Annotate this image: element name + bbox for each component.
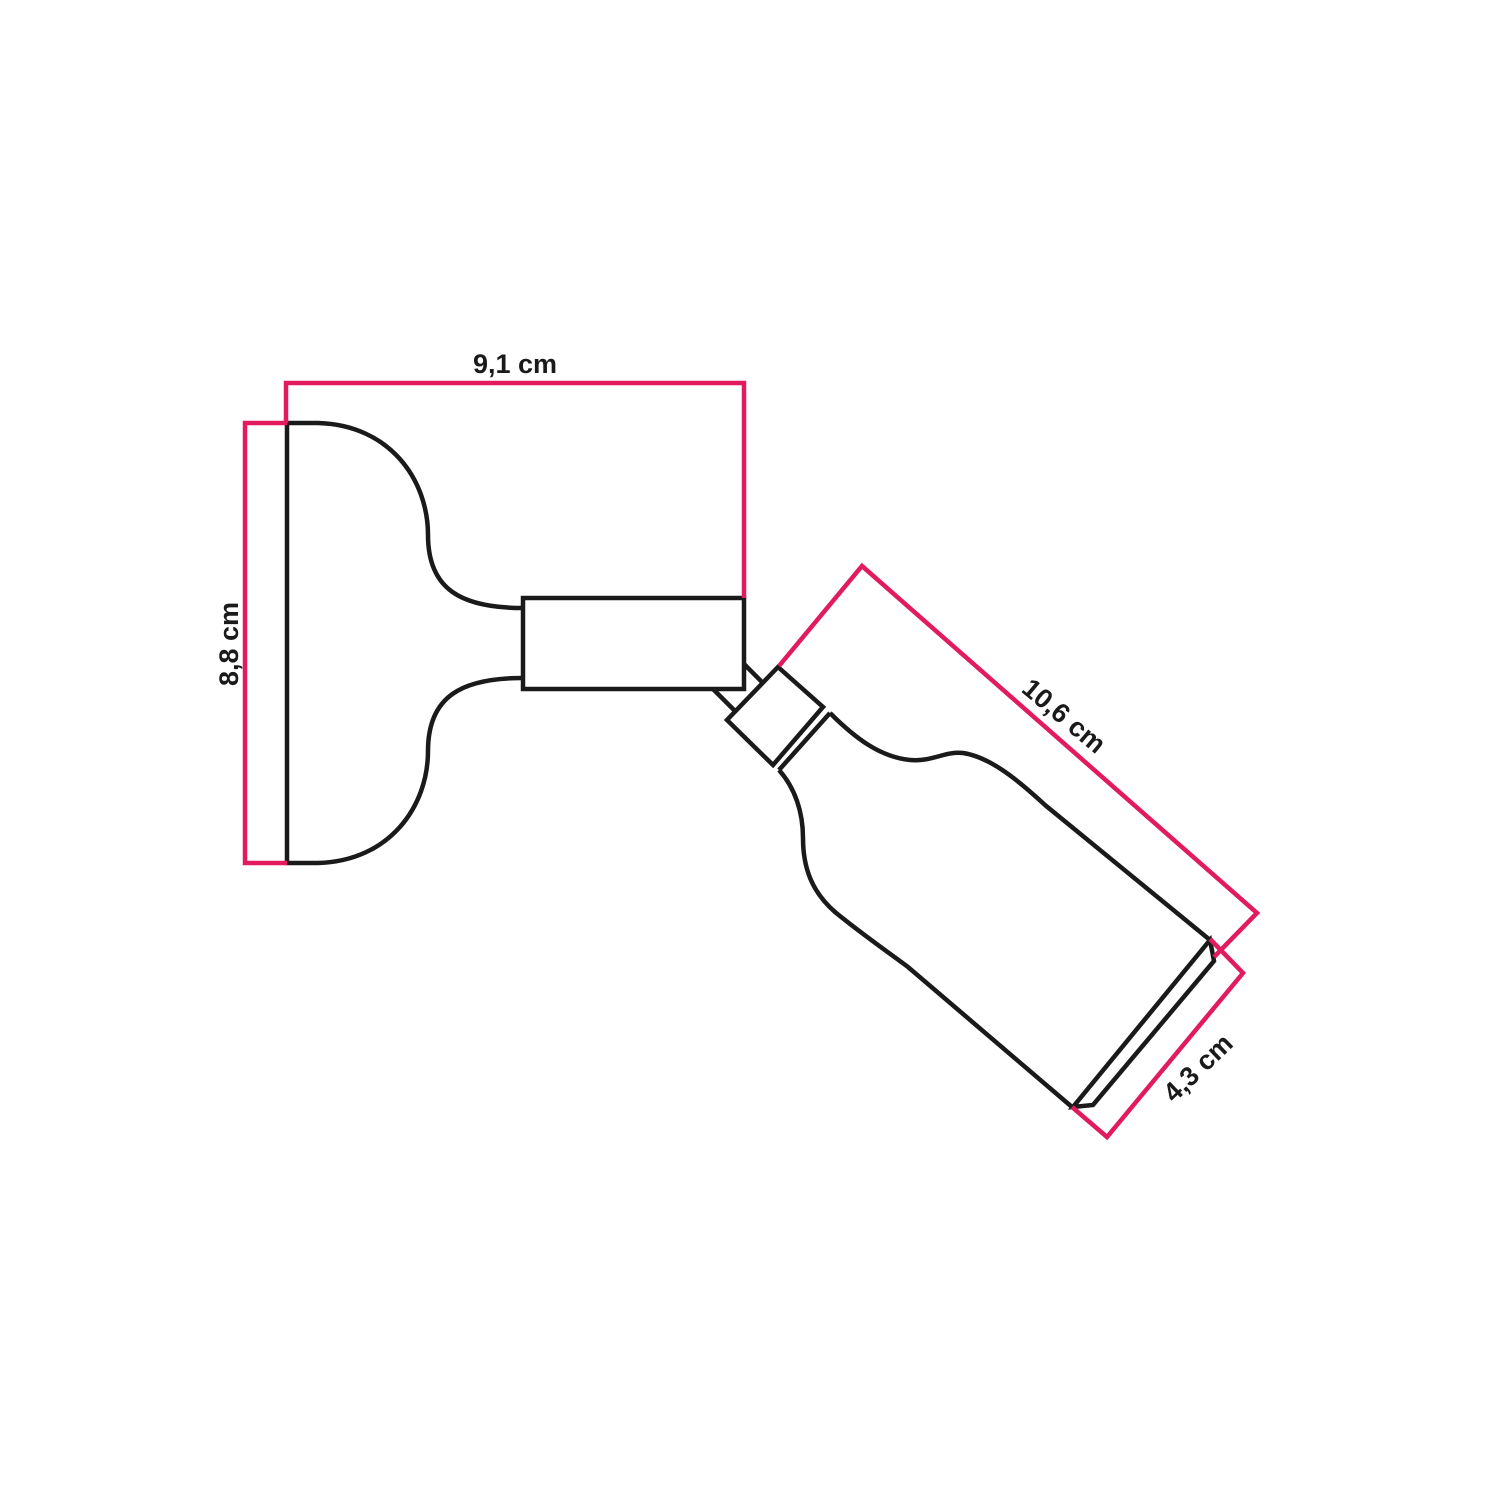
length-dimension-line [779,566,1257,957]
lamp-cup-lower-profile [779,770,1072,1107]
joint-stem-upper-line [744,664,763,683]
width-dimension-line [286,383,744,598]
joint-stem-lower-line [713,689,735,711]
lamp-cup-rim-edge [779,713,830,770]
socket-body [523,598,744,689]
lamp-cup-upper-profile [830,713,1210,940]
height-dimension-line [245,423,287,863]
wall-spotlight-dimension-diagram: 9,1 cm 8,8 cm 10,6 cm 4,3 cm [0,0,1500,1500]
swivel-joint [727,667,823,765]
holder-diameter-label: 4,3 cm [1157,1028,1238,1108]
base-width-label: 9,1 cm [473,349,557,379]
dimension-diagram-canvas: 9,1 cm 8,8 cm 10,6 cm 4,3 cm [0,0,1500,1500]
base-height-label: 8,8 cm [214,602,244,686]
wall-base-outline [287,423,523,863]
